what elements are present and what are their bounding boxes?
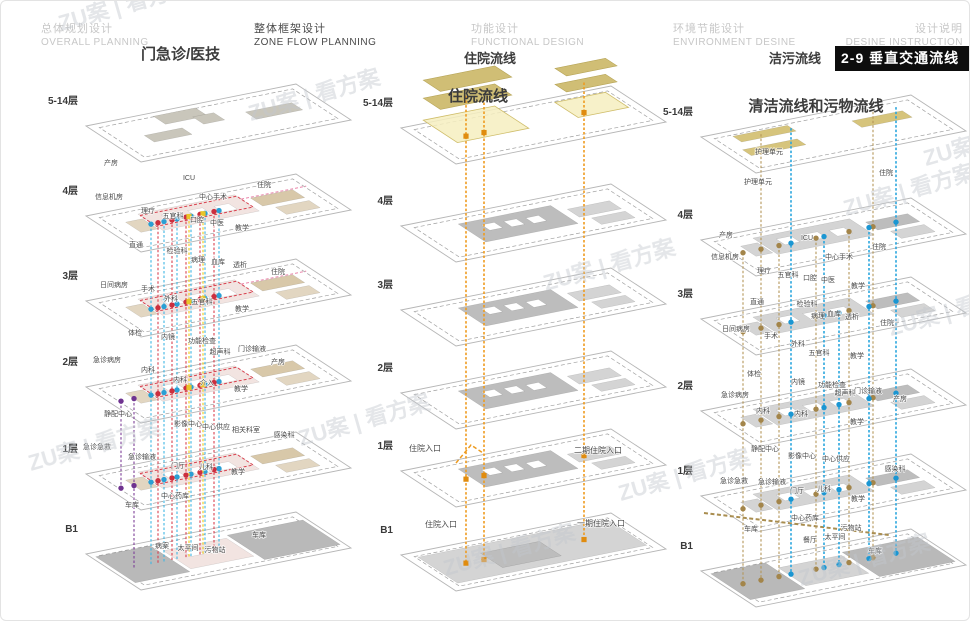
slide-page: 总体规划设计 OVERALL PLANNING 整体框架设计 ZONE FLOW…	[0, 0, 970, 621]
plan-label: 太平间	[178, 543, 199, 552]
plan-label: 信息机房	[95, 192, 123, 201]
plan-label: 影像中心	[174, 419, 202, 428]
plan-label: 内科	[794, 409, 808, 418]
plan-label: 信息机房	[711, 252, 739, 261]
floor-label: 4层	[377, 195, 393, 207]
plan-label: 直通	[750, 297, 764, 306]
plan-label: 中心药库	[161, 491, 189, 500]
plan-label: 护理单元	[744, 177, 772, 186]
plan-label: 相关科室	[232, 425, 260, 434]
plan-label: 感染科	[885, 464, 906, 473]
plan-label: 中心供应	[202, 422, 230, 431]
plan-label: 护理单元	[755, 147, 783, 156]
floor-label: 2层	[677, 380, 693, 392]
plan-label: 血库	[827, 309, 841, 318]
plan-label: 教学	[231, 467, 245, 476]
plan-label: 车库	[125, 500, 139, 509]
plan-label: 产房	[719, 230, 733, 239]
plan-label: 体检	[128, 328, 142, 337]
plan-label: 日间病房	[722, 324, 750, 333]
plan-label: 住院	[257, 180, 271, 189]
plan-label: ICU	[183, 175, 195, 182]
plan-label: 急诊急救	[720, 476, 748, 485]
plan-label: 教学	[850, 417, 864, 426]
plan-label: 中心药库	[791, 513, 819, 522]
diagram-title: 清洁流线和污物流线	[748, 97, 883, 115]
plan-label: 污物站	[205, 545, 226, 554]
watermark-text: ZU案 | 看方案	[55, 1, 193, 36]
plan-label: 住院	[879, 168, 893, 177]
plan-label: 中医	[821, 275, 835, 284]
plan-label: 餐厅	[803, 535, 817, 544]
floor-label: 4层	[62, 185, 78, 197]
plan-label: 理疗	[141, 206, 155, 215]
plan-label: 五官科	[192, 297, 213, 306]
floor-label: B1	[65, 524, 78, 535]
plan-label: 功能检查	[188, 336, 216, 345]
plan-label: 感染科	[274, 430, 295, 439]
plan-label: 病案	[155, 541, 169, 550]
plan-label: 超声科	[835, 388, 856, 397]
floor-label: B1	[680, 541, 693, 552]
plan-label: 内镜	[791, 377, 805, 386]
plan-label: 透析	[845, 312, 859, 321]
plan-label: 手术	[764, 331, 778, 340]
plan-label: 透析	[233, 260, 247, 269]
plan-label: 儿科	[817, 484, 831, 493]
floor-label: 1层	[377, 440, 393, 452]
plan-label: 直通	[129, 240, 143, 249]
plan-label: ICU	[801, 235, 813, 242]
diagram-outpatient-medtech: 5-14层4层3层2层1层B1产房ICU住院信息机房中心手术理疗五官科口腔中医教…	[48, 84, 351, 590]
plan-label: 教学	[235, 304, 249, 313]
floor-label: 4层	[677, 209, 693, 221]
floor-label: B1	[380, 525, 393, 536]
plan-label: 住院	[271, 267, 285, 276]
plan-label: 口腔	[803, 273, 817, 282]
plan-label: 产房	[104, 158, 118, 167]
plan-label: 急诊病房	[93, 355, 121, 364]
plan-label: 产房	[271, 357, 285, 366]
plan-label: 太平间	[825, 532, 846, 541]
floor-label: 2层	[377, 362, 393, 374]
plan-label: 车库	[744, 524, 758, 533]
plan-label: 介入	[200, 379, 214, 387]
plan-label: 外科	[164, 294, 178, 303]
plan-label: 体检	[747, 369, 761, 378]
plan-label: 教学	[851, 281, 865, 290]
plan-label: 内科	[756, 406, 770, 415]
plan-label: 门诊输液	[854, 386, 882, 395]
plan-label: 住院入口	[425, 519, 457, 529]
watermark-text: ZU案 | 看方案	[295, 389, 433, 451]
plan-label: 住院入口	[409, 443, 441, 453]
plan-label: 污物站	[841, 523, 862, 532]
floor-label: 5-14层	[363, 97, 393, 109]
plan-label: 内科	[141, 365, 155, 374]
plan-label: 静配中心	[751, 444, 779, 453]
plan-label: 五官科	[809, 348, 830, 357]
plan-label: 检验科	[797, 299, 818, 308]
plan-label: 内科	[173, 375, 187, 384]
plan-label: 教学	[850, 351, 864, 360]
plan-label: 血库	[211, 257, 225, 266]
floor-label: 3层	[377, 279, 393, 291]
plan-label: 中医	[210, 218, 224, 227]
plan-label: 教学	[851, 494, 865, 503]
plan-label: 五官科	[778, 270, 799, 279]
plan-label: 内镜	[161, 332, 175, 341]
diagram-title: 住院流线	[448, 87, 508, 105]
plan-label: 理疗	[757, 266, 771, 275]
floor-label: 2层	[62, 356, 78, 368]
plan-label: 外科	[791, 339, 805, 348]
diagram-inpatient-flow: 5-14层4层3层2层1层B1住院入口二期住院入口住院入口一期住院入口住院流线	[363, 58, 666, 591]
plan-label: 二期住院入口	[574, 445, 622, 455]
plan-label: 急诊输液	[758, 477, 786, 486]
plan-label: 门厅	[790, 486, 804, 495]
plan-label: 检验科	[167, 246, 188, 255]
floor-label: 5-14层	[48, 95, 78, 107]
plan-label: 病理	[811, 311, 825, 320]
plan-label: 车库	[252, 530, 266, 539]
plan-label: 五官科	[163, 211, 184, 220]
plan-label: 影像中心	[788, 451, 816, 460]
plan-label: 中心手术	[825, 252, 853, 261]
floor-label: 5-14层	[663, 106, 693, 118]
plan-label: 教学	[234, 384, 248, 393]
plan-label: 手术	[141, 284, 155, 293]
plan-label: 门厅	[171, 461, 185, 470]
plan-label: 一期住院入口	[577, 518, 625, 528]
plan-label: 急诊输液	[128, 452, 156, 461]
plan-label: 日间病房	[100, 280, 128, 289]
plan-label: 教学	[235, 223, 249, 232]
vertical-circulation-diagrams: 5-14层4层3层2层1层B1产房ICU住院信息机房中心手术理疗五官科口腔中医教…	[1, 1, 970, 621]
floor-label: 3层	[62, 270, 78, 282]
plan-label: 功能检查	[818, 380, 846, 389]
plan-label: 儿科	[199, 462, 213, 471]
plan-label: 超声科	[210, 347, 231, 356]
plan-label: 中心供应	[822, 454, 850, 463]
plan-label: 门诊输液	[238, 344, 266, 353]
plan-label: 住院	[872, 242, 886, 251]
plan-label: 病理	[191, 255, 205, 264]
floor-label: 3层	[677, 288, 693, 300]
plan-label: 产房	[893, 394, 907, 403]
plan-label: 口腔	[190, 215, 204, 224]
plan-label: 中心手术	[199, 192, 227, 201]
plan-label: 急诊病房	[721, 390, 749, 399]
plan-label: 静配中心	[104, 409, 132, 418]
